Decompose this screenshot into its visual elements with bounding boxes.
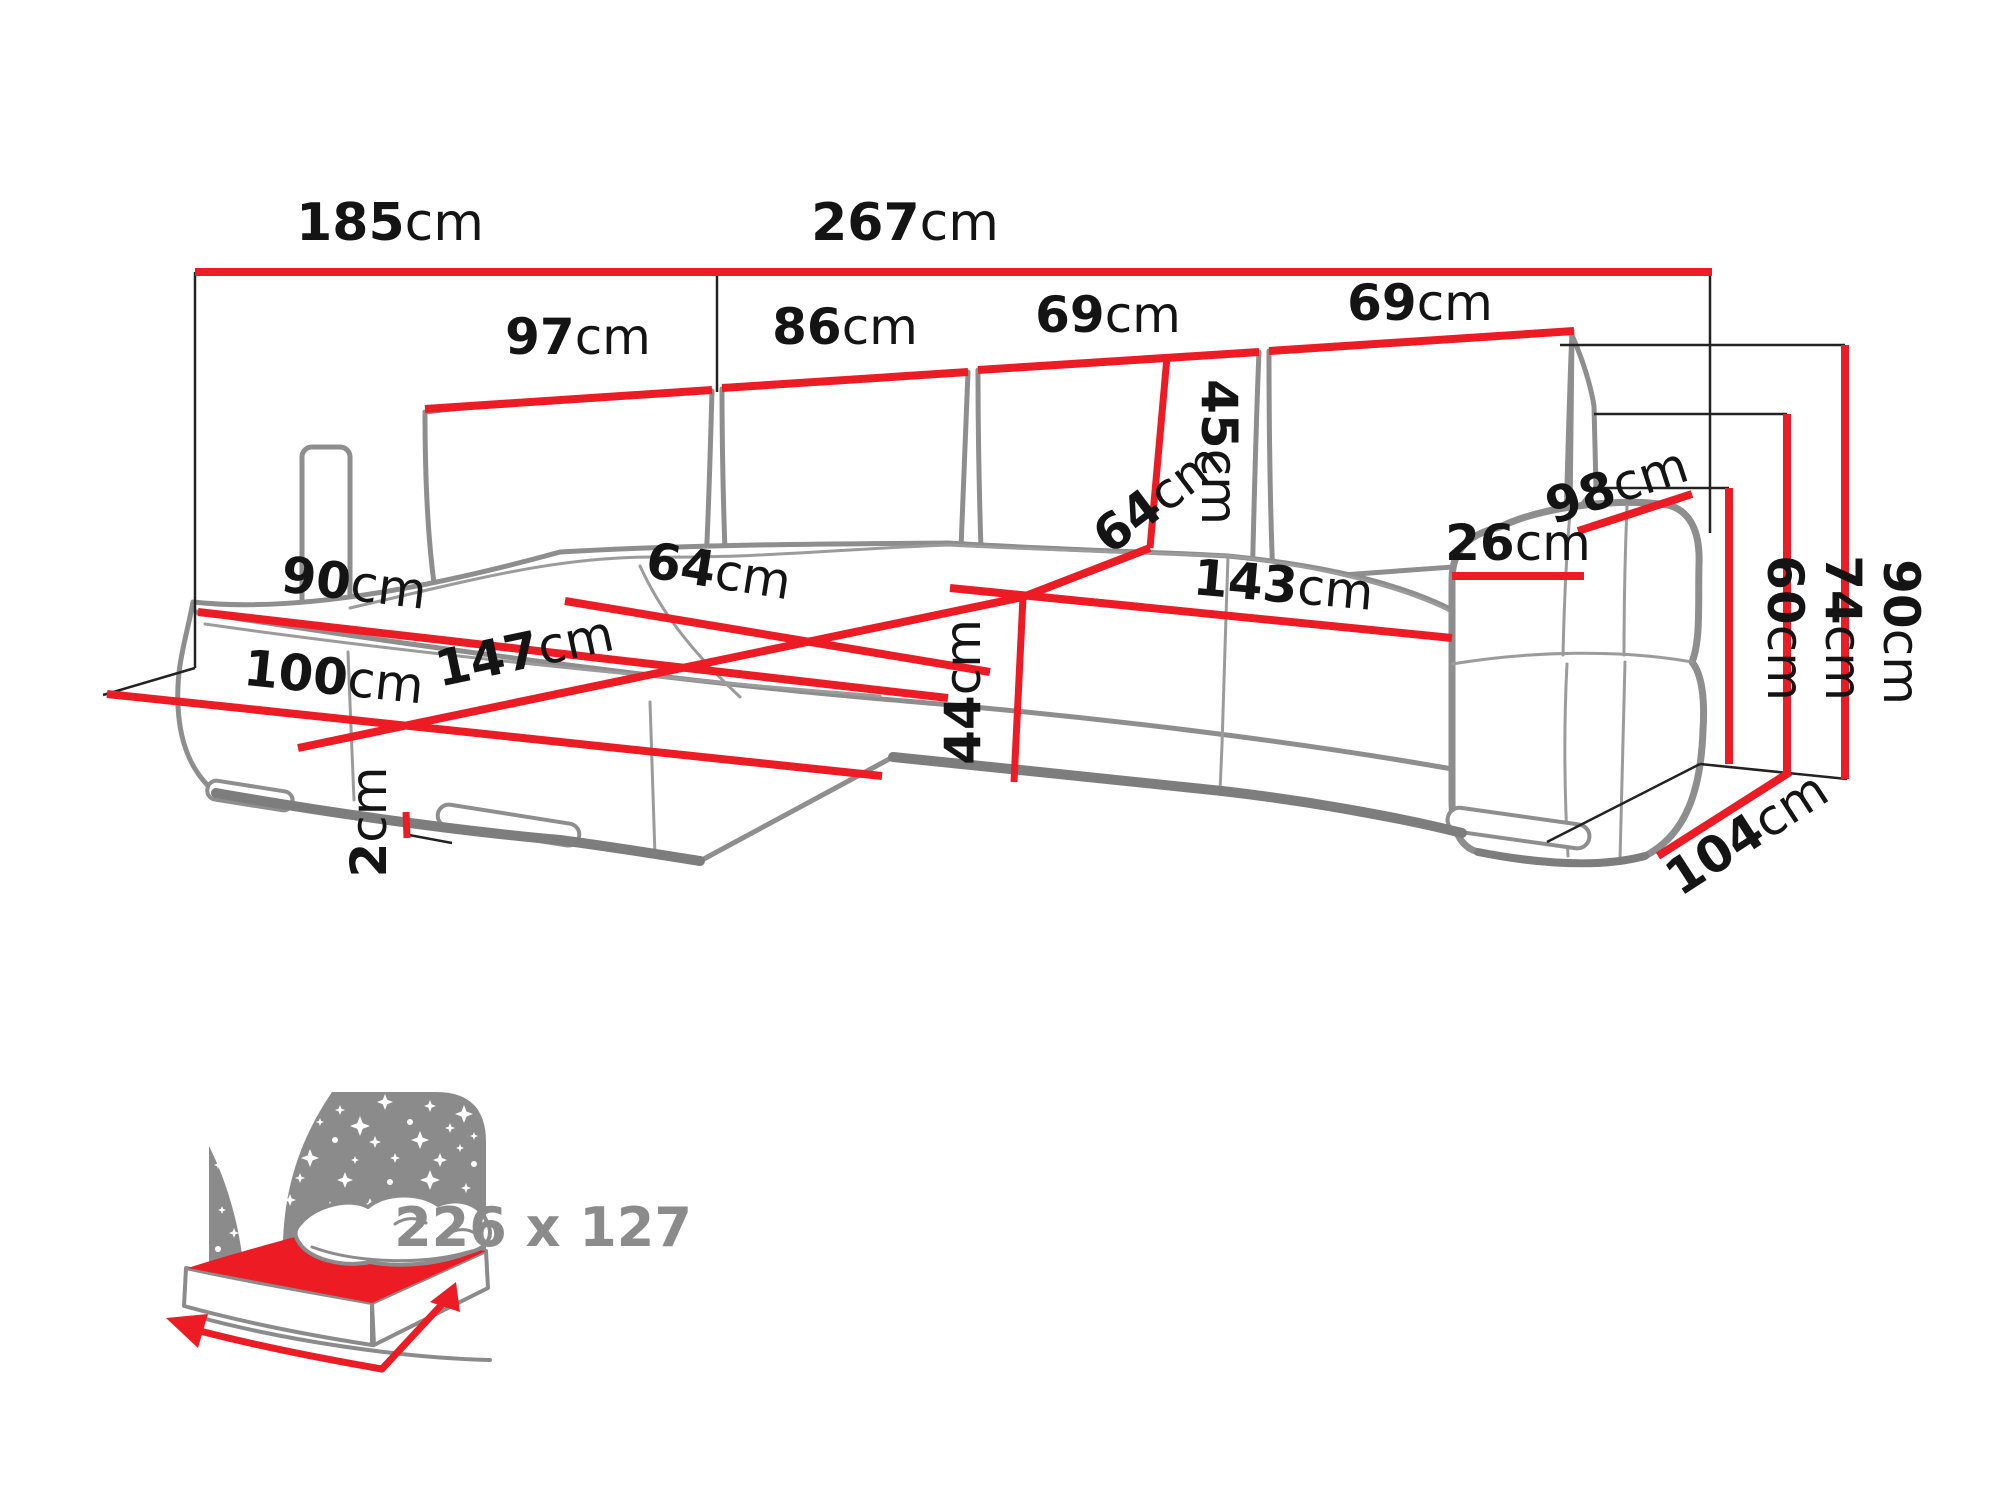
star-icon	[407, 1119, 413, 1125]
star-icon	[471, 1161, 477, 1167]
sleeping-function-icon: 226 x 127	[166, 1092, 692, 1369]
dim-label-backrest-4: 69cm	[1347, 274, 1493, 332]
helper-leg-leader	[409, 835, 452, 843]
dim-label-armrest-height-74: 74cm	[1814, 555, 1872, 701]
dim-label-total-height-90: 90cm	[1872, 559, 1930, 705]
star-icon	[262, 1117, 268, 1123]
star-icon	[387, 1179, 393, 1185]
dim-label-backrest-3: 69cm	[1035, 286, 1181, 344]
length-arrow-head	[166, 1314, 208, 1348]
dim-line-leg-height-2	[406, 812, 407, 838]
dim-label-leg-height-2: 2cm	[340, 767, 398, 878]
dim-label-backrest-1: 97cm	[505, 308, 651, 366]
star-icon	[332, 1137, 338, 1143]
main-front-face-seam	[1220, 745, 1222, 791]
star-icon	[292, 1128, 302, 1138]
dim-label-overall-width-right: 267cm	[811, 193, 999, 253]
star-icon	[293, 1098, 307, 1112]
star-icon	[215, 1246, 221, 1252]
starry-night-wedge	[209, 1146, 243, 1262]
sleeping-area-label: 226 x 127	[394, 1196, 692, 1259]
helper-floor-line-right	[1700, 764, 1847, 779]
corner-sofa-dimension-diagram: 185cm 267cm 97cm 86cm 69cm 69cm 45cm 64c…	[0, 0, 2000, 1499]
dimension-diagram-page: 185cm 267cm 97cm 86cm 69cm 69cm 45cm 64c…	[0, 0, 2000, 1499]
dim-label-seat-floor-60: 60cm	[1756, 555, 1814, 701]
dim-label-overall-width-left: 185cm	[296, 193, 484, 253]
dim-label-backrest-2: 86cm	[772, 298, 918, 356]
dim-label-seat-height-44: 44cm	[934, 619, 992, 765]
